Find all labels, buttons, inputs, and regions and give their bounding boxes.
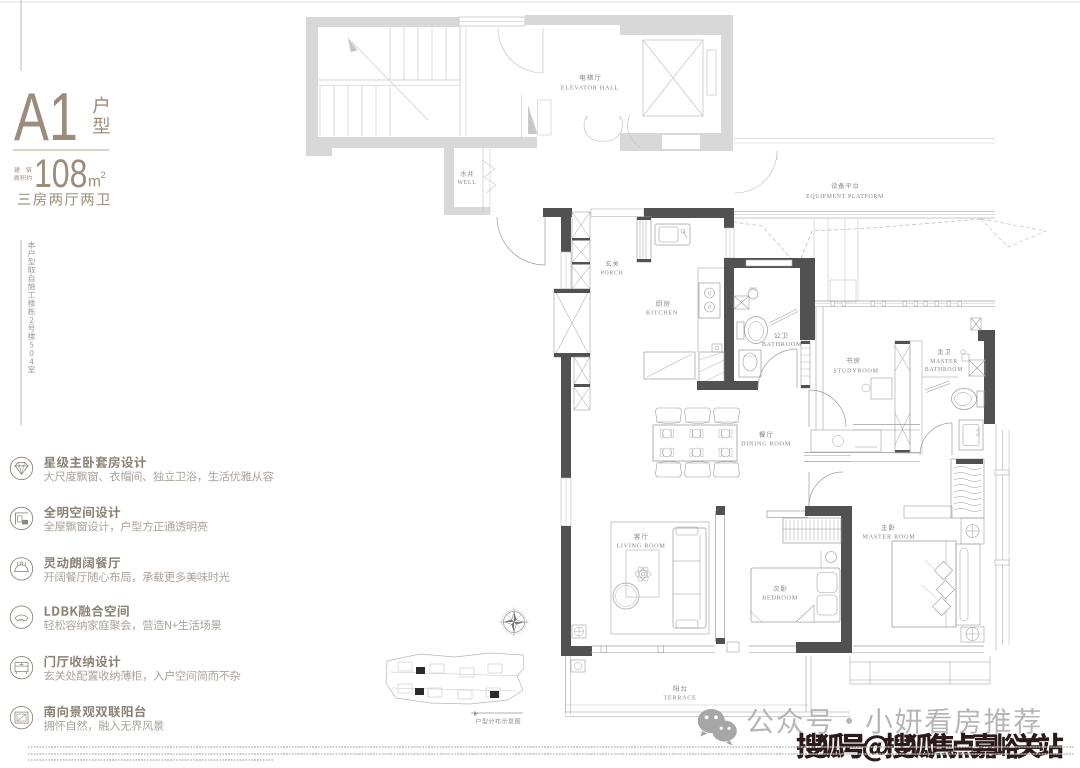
svg-text:LIVING ROOM: LIVING ROOM [616, 543, 665, 550]
svg-text:BEDROOM: BEDROOM [762, 595, 798, 602]
svg-text:WELL: WELL [458, 180, 477, 186]
svg-text:MASTER: MASTER [930, 359, 958, 365]
svg-text:m: m [88, 174, 101, 191]
svg-text:ELEVATOR HALL: ELEVATOR HALL [561, 85, 619, 92]
svg-text:STUDYROOM: STUDYROOM [833, 368, 879, 375]
svg-text:DINING ROOM: DINING ROOM [741, 441, 791, 448]
svg-text:A1: A1 [14, 78, 78, 154]
svg-text:MASTER ROOM: MASTER ROOM [863, 534, 916, 541]
svg-text:TERRACE: TERRACE [663, 695, 696, 702]
svg-text:PORCH: PORCH [601, 271, 624, 277]
svg-text:EQUIPMENT PLATFORM: EQUIPMENT PLATFORM [806, 194, 884, 200]
svg-text:2: 2 [101, 170, 106, 181]
svg-text:KITCHEN: KITCHEN [646, 310, 678, 317]
svg-text:108: 108 [34, 151, 87, 196]
svg-text:BATHROOM: BATHROOM [925, 367, 963, 373]
svg-text:BATHROOM: BATHROOM [762, 341, 802, 348]
